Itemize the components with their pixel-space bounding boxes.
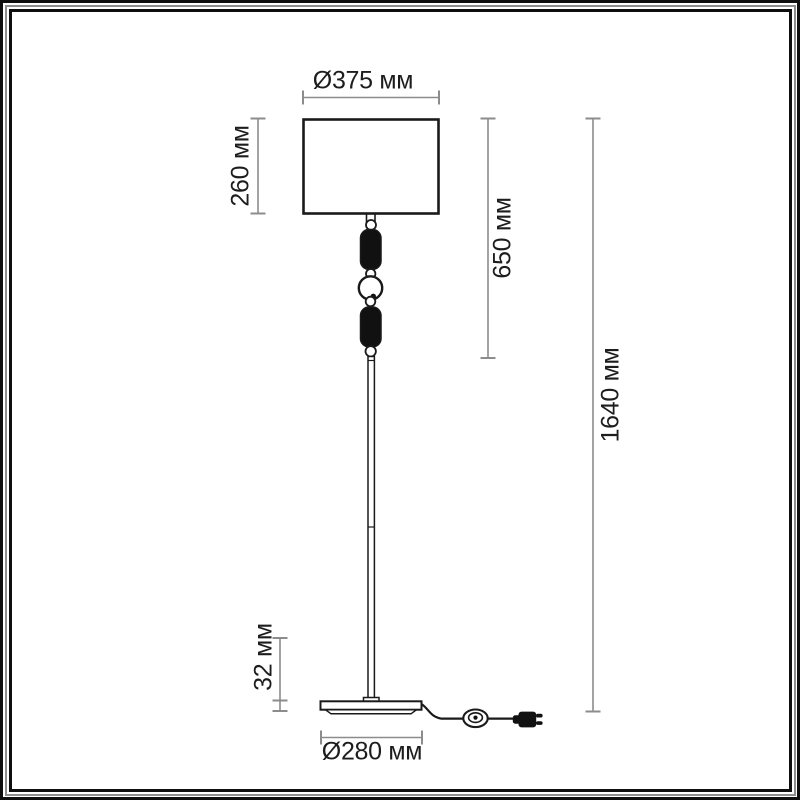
lamp-shade <box>304 120 439 214</box>
power-cord <box>422 704 464 719</box>
label-total-height: 1640 мм <box>599 348 624 443</box>
label-base-height: 32 мм <box>252 623 277 691</box>
foot-switch <box>463 710 487 728</box>
power-plug <box>513 712 543 728</box>
base-bottom-plate <box>326 710 417 714</box>
label-upper-section-height: 650 мм <box>491 197 516 278</box>
bead-bottom <box>366 346 376 356</box>
diagram-canvas: Ø375 мм 260 мм 650 мм 1640 мм 32 мм Ø280… <box>0 0 800 800</box>
bead-top <box>366 220 376 230</box>
base-top-plate <box>321 701 422 709</box>
label-shade-diameter: Ø375 мм <box>313 69 413 94</box>
label-base-diameter: Ø280 мм <box>322 740 422 765</box>
bead-mid-lower <box>366 297 376 307</box>
finial-capsule-upper <box>361 230 382 270</box>
lamp-technical-drawing <box>0 0 800 800</box>
finial-capsule-lower <box>361 307 382 347</box>
label-shade-height: 260 мм <box>229 125 254 206</box>
